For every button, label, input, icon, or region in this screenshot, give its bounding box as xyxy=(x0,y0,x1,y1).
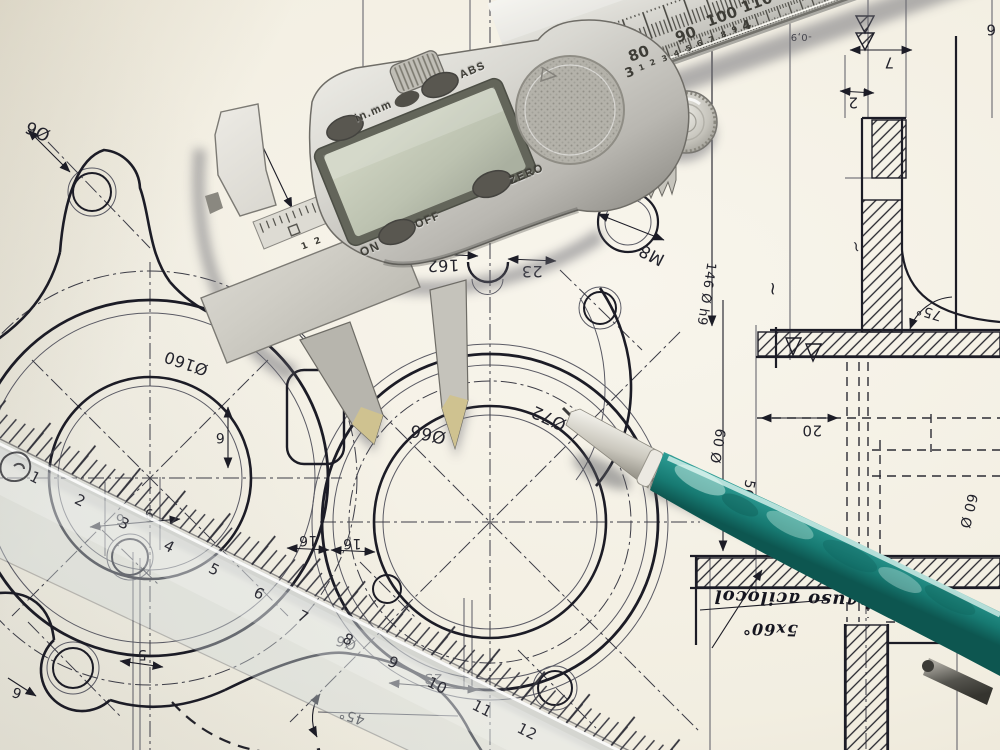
section-view xyxy=(690,16,1000,750)
ruler-logo-mark xyxy=(1,452,31,481)
drawing-annotation: Ø6 xyxy=(334,632,358,651)
caliper-upper-jaw xyxy=(215,104,276,216)
drawing-annotation: 6 xyxy=(986,22,996,37)
caliper-inch-subdigit: 1 xyxy=(638,63,646,73)
ruler-number: 2 xyxy=(72,492,88,510)
caliper-mm-number: 100 xyxy=(704,4,739,29)
drawing-annotation: 6 xyxy=(115,511,124,525)
beam-zero-box xyxy=(288,224,300,236)
caliper-textured-disc xyxy=(516,56,624,164)
caliper-mm-number: 80 xyxy=(626,43,651,64)
caliper-inch-subdigit-layer: 123456789 xyxy=(0,0,1000,750)
drawing-annotation: 6 xyxy=(10,684,24,700)
technical-drawing-linework xyxy=(0,0,1000,750)
caliper-vernier-digit: 2 xyxy=(313,237,322,248)
caliper-mm-number-layer: 8090100110 xyxy=(0,0,1000,750)
drawing-annotation: 5 xyxy=(137,647,146,661)
caliper-label-off: OFF xyxy=(414,211,442,231)
head-slot xyxy=(392,88,421,111)
pencil-lead xyxy=(563,408,574,419)
pencil-tip-cone xyxy=(566,409,660,488)
caliper-mm-number: 110 xyxy=(739,0,774,16)
dashed-arc xyxy=(172,702,320,750)
drawing-annotation: ~ xyxy=(847,239,865,256)
ruler-number: 5 xyxy=(206,561,222,579)
ruler-number: 11 xyxy=(470,698,495,720)
blade-left-tip-facet xyxy=(352,407,383,444)
caliper-inner-blade-left xyxy=(300,322,383,444)
caliper-beam-start xyxy=(253,186,354,249)
caliper-inch-number-layer: 34 xyxy=(0,0,1000,750)
caliper-jaw-tip-insert xyxy=(205,192,223,214)
caliper-thumb-wheel xyxy=(388,49,446,96)
dimension-lines xyxy=(8,6,952,737)
caliper-inch-subdigit: 3 xyxy=(661,54,669,64)
ruler-number-layer: 123456789101112 xyxy=(0,0,1000,750)
ruler-number: 4 xyxy=(161,538,177,556)
dim-dia66: Ø66 xyxy=(408,421,447,446)
dim-m8: M8 xyxy=(636,240,667,267)
dim-dia60-left: 60 Ø xyxy=(707,427,727,464)
caliper-jaws xyxy=(201,104,468,448)
dim-50: 50 xyxy=(739,479,756,500)
drawing-annotation: 16 xyxy=(299,533,318,547)
drawing-annotation-layer: Ø6M64016223M8146 Ø h9Ø160Ø66Ø726691616Ø6… xyxy=(0,0,1000,750)
caliper-beam xyxy=(488,0,1000,117)
dim-75deg: 75° xyxy=(914,301,943,322)
ruler-number: 7 xyxy=(295,608,311,626)
dim-45deg: 45° xyxy=(337,705,366,727)
caliper-inch-subdigit: 7 xyxy=(708,35,716,45)
dim-40: 40 xyxy=(409,86,433,104)
caliper-button-zero xyxy=(469,165,515,202)
measuring-tools xyxy=(0,0,1000,750)
head-bottom-shade xyxy=(384,210,578,265)
caliper-inch-subdigit: 5 xyxy=(685,44,693,54)
caliper-head xyxy=(310,20,689,264)
ruler-tick-marks xyxy=(0,395,694,750)
mechanical-pencil xyxy=(563,408,1000,705)
caliper-inch-number: 4 xyxy=(740,18,753,33)
thin-lines xyxy=(0,0,992,750)
handwritten-5x60: 5x60° xyxy=(742,620,798,638)
dim-20: 20 xyxy=(802,423,822,438)
ruler-number: 12 xyxy=(515,721,540,743)
caliper-slider-block xyxy=(201,222,420,363)
caliper-inch-number: 3 xyxy=(623,65,636,80)
pencil-highlight xyxy=(668,458,1000,615)
caliper-lcd xyxy=(312,76,538,248)
hidden-lines xyxy=(757,362,1000,622)
caliper-inch-subdigit: 2 xyxy=(649,58,657,68)
ruler-number: 9 xyxy=(385,654,401,672)
caliper-roller-knob xyxy=(655,91,717,153)
dim-23-top: 23 xyxy=(521,263,542,279)
caliper-rack-teeth xyxy=(574,158,676,212)
drawing-annotation: 9 xyxy=(144,506,153,520)
caliper-mm-number: 90 xyxy=(673,24,698,45)
ruler-edge-highlight xyxy=(0,434,650,750)
photo-of-technical-drawing-with-tools: Ø6M64016223M8146 Ø h9Ø160Ø66Ø726691616Ø6… xyxy=(0,0,1000,750)
caliper-inch-subdigit: 9 xyxy=(731,25,739,35)
caliper-inch-subdigit: 8 xyxy=(720,30,728,40)
pencil-clip xyxy=(923,658,993,705)
drawing-annotation: 6 xyxy=(215,430,224,444)
caliper-lcd-screen xyxy=(323,87,527,238)
caliper-label-abs: ABS xyxy=(458,61,488,82)
caliper-vernier-digit-layer: 12 xyxy=(0,0,1000,750)
caliper-inch-subdigit: 6 xyxy=(696,39,704,49)
caliper-label-on: ON xyxy=(358,239,382,258)
drawing-annotation: 7 xyxy=(884,55,894,70)
dim-162: 162 xyxy=(427,256,460,273)
flange-outlines xyxy=(0,150,658,750)
caliper-label-inmm: in.mm xyxy=(354,99,395,125)
blade-right-tip-facet xyxy=(442,395,468,448)
caliper-inch-subdigit: 4 xyxy=(673,49,681,59)
caliper-button-inmm xyxy=(323,111,366,146)
drawing-annotation: 2 xyxy=(848,95,858,110)
pencil-marbling xyxy=(671,458,980,620)
pencil-barrel xyxy=(650,452,1000,676)
dim-m6: M6 xyxy=(235,150,265,174)
tool-shadows xyxy=(193,0,1000,650)
pencil-clip-rivet xyxy=(922,660,934,672)
section-hatching xyxy=(697,16,1000,750)
drawing-annotation: 23 xyxy=(423,671,442,685)
caliper-inner-blade-right xyxy=(430,280,468,448)
caliper-button-abs xyxy=(418,68,461,103)
dim-dia72: Ø72 xyxy=(529,402,569,433)
caliper-buttons xyxy=(323,68,515,250)
drawing-annotation: ~ xyxy=(763,281,781,297)
ruler-body xyxy=(0,430,655,750)
caliper-mm-scale xyxy=(508,0,1000,86)
drawing-annotation: -0,9 xyxy=(790,31,812,41)
ruler-number: 1 xyxy=(27,469,43,487)
ruler-number: 10 xyxy=(425,675,450,697)
ruler-number: 3 xyxy=(116,515,132,533)
caliper-inch-scale xyxy=(521,0,1000,111)
dim-dia6-top-left: Ø6 xyxy=(23,117,53,143)
caliper-vernier-digit: 1 xyxy=(300,242,309,253)
center-lines xyxy=(0,0,866,750)
handwritten-note: hauso acilocol xyxy=(714,586,873,610)
caliper-label-layer: in.mmABSZEROOFFON xyxy=(0,0,1000,750)
dim-dia160: Ø160 xyxy=(162,348,210,378)
caliper-button-onoff xyxy=(375,215,418,250)
drawing-annotation: 16 xyxy=(343,536,362,550)
ruler-edge-line xyxy=(0,429,652,750)
dim-146: 146 Ø h9 xyxy=(695,261,718,326)
pencil-collar xyxy=(635,448,677,495)
ruler-lower-edge xyxy=(0,549,448,750)
disc-triangle-mark xyxy=(541,68,556,81)
caliper-label-zero: ZERO xyxy=(508,163,546,187)
ruler-edge-shadow xyxy=(0,432,654,750)
ruler-number: 6 xyxy=(251,585,267,603)
transparent-ruler xyxy=(0,0,1000,750)
ruler-number: 8 xyxy=(340,631,356,649)
dim-dia60-right: 60 Ø xyxy=(957,492,979,530)
